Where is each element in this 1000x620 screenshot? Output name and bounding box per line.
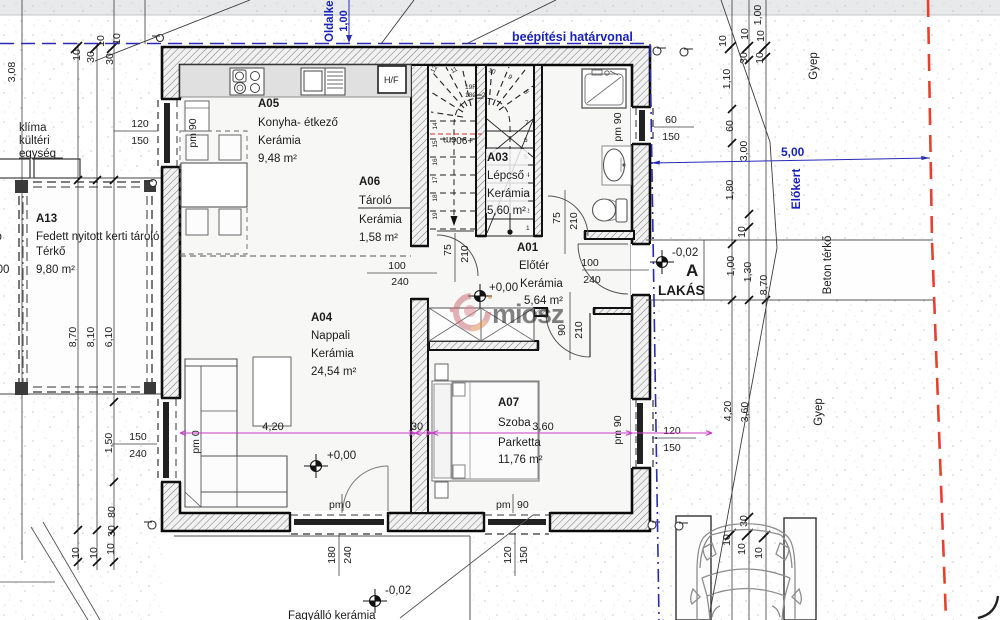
svg-text:5,60 m²: 5,60 m² [487, 205, 526, 217]
svg-text:Térkő: Térkő [36, 246, 65, 258]
svg-text:120: 120 [502, 546, 514, 564]
svg-text:60: 60 [724, 120, 736, 132]
svg-text:30: 30 [738, 52, 750, 64]
svg-text:150: 150 [518, 546, 530, 564]
svg-text:5,00: 5,00 [781, 145, 805, 159]
svg-text:11,76 m²: 11,76 m² [498, 454, 543, 466]
svg-text:1,10: 1,10 [721, 69, 733, 90]
svg-text:10: 10 [739, 28, 751, 40]
svg-text:90: 90 [517, 499, 529, 511]
svg-text:A01: A01 [517, 242, 539, 254]
svg-text:4,20: 4,20 [722, 401, 734, 422]
svg-text:3,60: 3,60 [739, 402, 751, 423]
svg-text:240: 240 [342, 546, 354, 564]
svg-text:120: 120 [663, 425, 681, 437]
svg-text:18: 18 [432, 194, 439, 202]
svg-text:10: 10 [95, 35, 107, 47]
svg-text:14: 14 [432, 122, 439, 130]
svg-text:10: 10 [71, 49, 83, 61]
svg-text:pm 90: pm 90 [612, 415, 624, 444]
svg-text:A13: A13 [36, 213, 57, 225]
svg-text:+0,00: +0,00 [327, 450, 356, 462]
svg-text:A06: A06 [359, 176, 380, 188]
svg-text:30: 30 [104, 53, 116, 65]
svg-text:60: 60 [665, 114, 677, 126]
svg-text:Fagyálló kerámia: Fagyálló kerámia [288, 610, 376, 620]
svg-text:10: 10 [736, 543, 748, 555]
svg-text:150: 150 [663, 442, 681, 454]
svg-text:150: 150 [662, 131, 680, 143]
svg-text:A05: A05 [258, 98, 280, 110]
svg-text:klíma: klíma [19, 122, 47, 134]
svg-text:75: 75 [442, 244, 454, 256]
svg-text:1,00: 1,00 [725, 256, 737, 277]
svg-text:Lépcső: Lépcső [487, 170, 524, 182]
svg-text:19: 19 [432, 212, 439, 220]
svg-text:150: 150 [131, 135, 149, 147]
svg-text:Beton térkő: Beton térkő [822, 236, 834, 295]
svg-text:pm: pm [496, 499, 511, 511]
svg-text:6,10: 6,10 [103, 327, 115, 348]
svg-text:A: A [686, 261, 698, 280]
svg-text:75: 75 [551, 212, 563, 224]
svg-text:beépítési határvonal: beépítési határvonal [512, 30, 633, 44]
svg-text:+0,00: +0,00 [489, 282, 518, 294]
svg-text:Fedett nyitott kerti tároló: Fedett nyitott kerti tároló [36, 231, 159, 243]
svg-text:10: 10 [70, 547, 82, 559]
svg-text:pm 90: pm 90 [187, 118, 199, 147]
svg-text:Oldalkert: Oldalkert [324, 0, 336, 42]
svg-text:Tároló: Tároló [359, 195, 392, 207]
svg-text:3,08: 3,08 [6, 62, 18, 83]
svg-text:3,60: 3,60 [532, 421, 553, 433]
svg-text:9,00: 9,00 [0, 264, 9, 276]
svg-text:10: 10 [717, 35, 729, 47]
svg-text:8,70: 8,70 [67, 327, 79, 348]
svg-text:A07: A07 [498, 397, 519, 409]
svg-text:Nappali: Nappali [311, 330, 350, 342]
svg-text:15: 15 [432, 140, 439, 148]
svg-text:1,00: 1,00 [752, 5, 764, 26]
svg-text:pm 90: pm 90 [612, 112, 624, 141]
svg-text:ló: ló [0, 231, 2, 243]
svg-text:Szoba: Szoba [498, 417, 531, 429]
svg-text:80: 80 [106, 506, 118, 518]
svg-text:9,80 m²: 9,80 m² [36, 264, 75, 276]
svg-text:10: 10 [105, 543, 117, 555]
svg-text:Kerámia: Kerámia [359, 214, 402, 226]
svg-text:10: 10 [755, 30, 767, 42]
svg-text:1,80: 1,80 [724, 180, 736, 201]
svg-text:19F: 19F [465, 84, 476, 91]
svg-text:30: 30 [106, 525, 118, 537]
svg-text:0: 0 [345, 499, 351, 511]
svg-text:240: 240 [583, 274, 601, 286]
svg-text:Parketta: Parketta [498, 437, 541, 449]
svg-text:3,00: 3,00 [738, 141, 750, 162]
svg-text:A04: A04 [311, 312, 333, 324]
svg-text:1,58 m²: 1,58 m² [359, 232, 398, 244]
svg-text:pm 0: pm 0 [190, 430, 202, 454]
svg-text:4,20: 4,20 [262, 421, 283, 433]
svg-text:1,30: 1,30 [742, 262, 754, 283]
svg-text:7: 7 [525, 120, 529, 127]
svg-text:30: 30 [411, 421, 423, 433]
svg-text:8,10: 8,10 [85, 327, 97, 348]
svg-text:miosz: miosz [492, 299, 564, 329]
svg-text:100: 100 [581, 257, 599, 269]
svg-text:17: 17 [432, 176, 439, 184]
svg-text:10: 10 [754, 52, 766, 64]
svg-text:10: 10 [753, 547, 765, 559]
svg-text:Kerámia: Kerámia [487, 188, 530, 200]
svg-text:210: 210 [573, 321, 585, 339]
svg-text:A03: A03 [487, 152, 508, 164]
svg-text:1: 1 [526, 225, 530, 232]
svg-text:18Ø═2: 18Ø═2 [465, 92, 486, 99]
svg-text:Előkert: Előkert [789, 169, 803, 210]
svg-text:LAKÁS: LAKÁS [658, 283, 705, 298]
svg-text:Kerámia: Kerámia [258, 135, 301, 147]
svg-text:Konyha- étkező: Konyha- étkező [258, 117, 338, 129]
svg-text:100: 100 [388, 260, 406, 272]
svg-text:Kerámia: Kerámia [520, 278, 563, 290]
svg-text:30: 30 [85, 51, 97, 63]
svg-text:1,00: 1,00 [338, 10, 350, 31]
svg-text:Kerámia: Kerámia [311, 348, 354, 360]
svg-text:10: 10 [88, 547, 100, 559]
svg-text:1,50: 1,50 [103, 433, 115, 454]
svg-text:180: 180 [326, 546, 338, 564]
svg-text:Gyep: Gyep [813, 398, 825, 426]
svg-text:10: 10 [736, 226, 748, 238]
svg-text:Előtér: Előtér [519, 260, 549, 272]
svg-text:120: 120 [131, 118, 149, 130]
svg-text:kültéri: kültéri [19, 135, 50, 147]
svg-text:-0,02: -0,02 [385, 585, 411, 597]
svg-text:Gyep: Gyep [808, 52, 820, 80]
svg-text:240: 240 [391, 276, 409, 288]
svg-text:210: 210 [568, 212, 580, 230]
svg-text:egység: egység [19, 148, 56, 160]
svg-text:-0,02: -0,02 [672, 247, 698, 259]
svg-text:9,48 m²: 9,48 m² [258, 153, 297, 165]
svg-text:8,70: 8,70 [758, 275, 770, 296]
svg-text:16: 16 [432, 158, 439, 166]
svg-text:210: 210 [459, 245, 471, 263]
svg-text:6: 6 [524, 137, 528, 144]
svg-text:24,54 m²: 24,54 m² [311, 366, 357, 378]
svg-text:+90cm: +90cm [443, 134, 473, 145]
svg-text:H/F: H/F [384, 75, 399, 85]
svg-text:30: 30 [738, 515, 750, 527]
svg-text:240: 240 [129, 448, 147, 460]
svg-text:150: 150 [129, 431, 147, 443]
